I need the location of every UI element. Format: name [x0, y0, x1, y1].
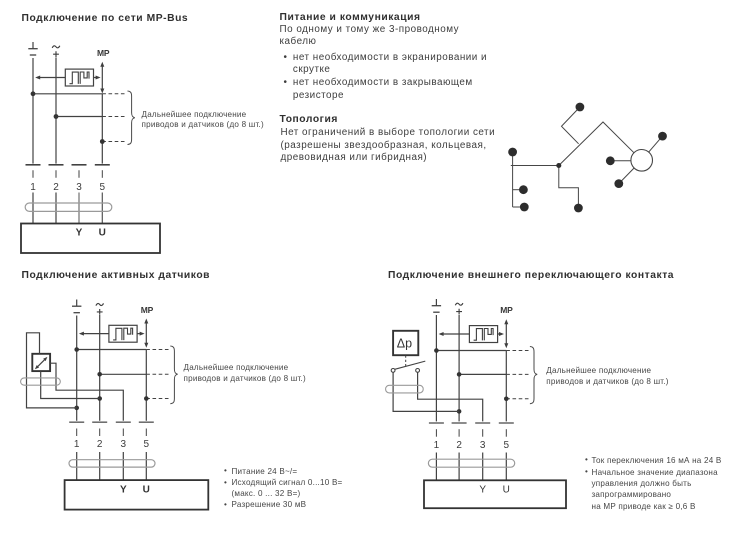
svg-text:2: 2: [97, 439, 103, 450]
svg-text:MP: MP: [97, 48, 110, 58]
svg-text:Δp: Δp: [397, 336, 412, 350]
svg-text:MP: MP: [141, 305, 154, 315]
svg-text:U: U: [143, 485, 150, 496]
svg-text:Y: Y: [76, 228, 83, 239]
svg-text:2: 2: [53, 182, 59, 193]
svg-text:MP: MP: [500, 305, 513, 315]
svg-text:1: 1: [74, 439, 80, 450]
svg-text:1: 1: [434, 440, 440, 451]
svg-text:1: 1: [30, 182, 36, 193]
svg-text:3: 3: [121, 439, 127, 450]
svg-text:5: 5: [504, 440, 510, 451]
svg-text:5: 5: [144, 439, 150, 450]
svg-text:2: 2: [456, 440, 462, 451]
svg-text:U: U: [503, 485, 510, 496]
svg-text:Y: Y: [120, 485, 127, 496]
svg-text:U: U: [99, 228, 106, 239]
svg-text:3: 3: [76, 182, 82, 193]
svg-text:5: 5: [100, 182, 106, 193]
svg-text:3: 3: [480, 440, 486, 451]
svg-text:Y: Y: [479, 485, 486, 496]
